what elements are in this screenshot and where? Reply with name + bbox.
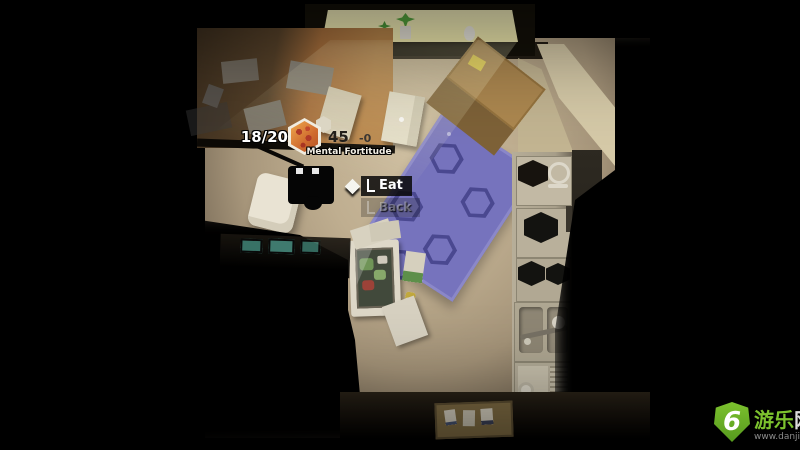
watermark-site-name: 游乐网 xyxy=(754,404,800,433)
watermark-logo-digit: 6 xyxy=(723,409,741,435)
watermark-site-name-green: 游乐 xyxy=(754,408,794,432)
egg-item xyxy=(464,26,475,41)
mail-letter xyxy=(480,408,493,425)
plant-pot-large xyxy=(400,26,411,39)
faucet-knob xyxy=(524,338,531,345)
action-option-back-label: Back xyxy=(379,200,411,214)
floor-highlight-speck xyxy=(447,132,451,136)
fridge-glass-door xyxy=(355,247,395,308)
option-bracket-icon xyxy=(367,179,375,192)
action-option-back[interactable]: Back xyxy=(361,198,420,217)
action-option-eat[interactable]: Eat xyxy=(361,176,412,196)
floor-highlight-speck xyxy=(399,117,404,122)
watermark-logo-shield: 6 xyxy=(714,402,750,442)
hud-stat-value: 45 xyxy=(328,128,349,146)
action-option-eat-label: Eat xyxy=(379,178,403,193)
watermark-url: www.danji6.com xyxy=(754,432,800,442)
watermark: 6 游乐网 www.danji6.com xyxy=(712,398,800,448)
paper-sheet xyxy=(221,58,259,84)
screen-device xyxy=(300,240,320,255)
screen-device xyxy=(240,238,262,253)
hud-hunger-value: 18/20 xyxy=(238,128,288,146)
mail-letter xyxy=(463,410,475,426)
glass-reflection xyxy=(355,247,395,308)
note-card xyxy=(402,251,426,283)
character-hand xyxy=(312,168,319,174)
counter-towel xyxy=(548,184,568,188)
character-hand xyxy=(296,168,303,174)
option-bracket-icon xyxy=(367,201,375,214)
mail-letter xyxy=(444,409,457,425)
watermark-url-prefix: www.danji xyxy=(754,432,800,442)
game-viewport: 18/20 45 -0 Mental Fortitude Eat Back 6 … xyxy=(0,0,800,450)
watermark-site-name-white: 网 xyxy=(794,408,800,432)
character-head xyxy=(304,196,322,210)
hud-stat-label: Mental Fortitude xyxy=(294,147,404,157)
coffee-table xyxy=(219,234,350,279)
screen-device xyxy=(268,238,295,254)
doormat xyxy=(434,401,513,440)
rug-hexagon xyxy=(418,227,462,272)
rug-hexagon xyxy=(456,180,500,225)
hud-stat-delta: -0 xyxy=(359,132,371,145)
burner-coil xyxy=(548,162,570,184)
